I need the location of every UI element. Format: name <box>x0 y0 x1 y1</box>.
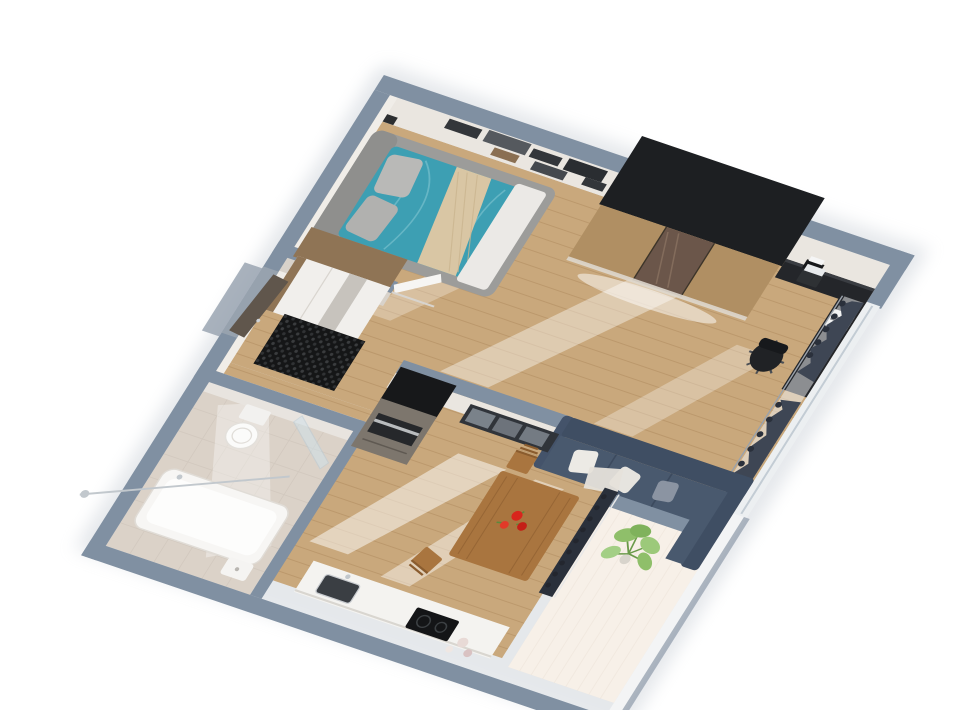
floorplan-render-canvas <box>0 0 960 710</box>
floorplan-svg <box>0 0 960 710</box>
